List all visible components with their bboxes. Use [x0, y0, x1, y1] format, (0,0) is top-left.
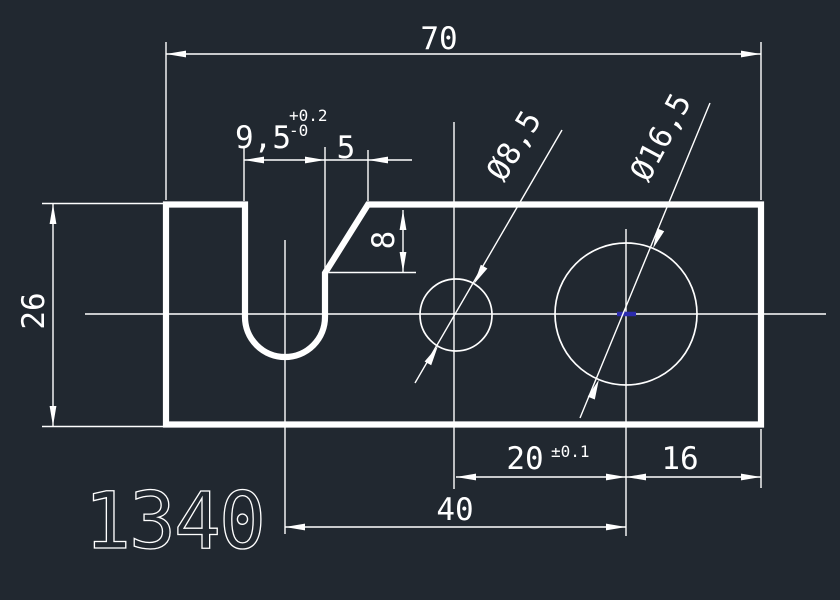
dim-text-overall-height[interactable]: 26 [16, 292, 52, 329]
dim-hole-spacing[interactable]: 20 ±0.1 [456, 441, 626, 480]
dim-slot-width[interactable]: 9,5 +0.2 -0 [235, 106, 328, 271]
dim-arrowhead [400, 252, 407, 272]
dim-text-overall-width[interactable]: 70 [420, 21, 457, 57]
dim-arrowhead [368, 157, 388, 164]
dim-arrowhead [166, 51, 186, 58]
dim-arrowhead [50, 406, 57, 426]
dim-arrowhead [741, 51, 761, 58]
dim-overall-height[interactable]: 26 [16, 204, 163, 427]
leader-arrowhead [588, 380, 599, 400]
dim-arrowhead [285, 524, 305, 531]
leader-arrowhead [425, 346, 438, 365]
dim-arrowhead [400, 210, 407, 230]
dim-small-hole-diameter[interactable]: Ø8,5 [415, 105, 562, 383]
dim-text-right-offset[interactable]: 16 [661, 441, 698, 477]
part-number-text[interactable]: 1340 [84, 477, 264, 567]
dim-text-large-hole-dia[interactable]: Ø16,5 [623, 88, 699, 187]
dim-text-slot-to-large-hole[interactable]: 40 [436, 492, 473, 528]
dim-arrowhead [244, 157, 264, 164]
dim-arrowhead [626, 474, 646, 481]
dim-arrowhead [741, 474, 761, 481]
dim-arrowhead [456, 474, 476, 481]
dim-large-hole-diameter[interactable]: Ø16,5 [580, 88, 710, 418]
dim-arrowhead [305, 157, 325, 164]
dim-arrowhead [606, 524, 626, 531]
dim-arrowhead [606, 474, 626, 481]
dim-text-chamfer-depth[interactable]: 8 [366, 231, 402, 250]
centerlines[interactable] [85, 122, 826, 536]
small-hole-circle[interactable] [420, 279, 492, 351]
dim-text-chamfer-width[interactable]: 5 [337, 130, 356, 166]
dim-chamfer-width[interactable]: 5 [325, 130, 412, 201]
cad-drawing-canvas[interactable]: 70 26 9,5 +0.2 -0 5 8 [0, 0, 840, 600]
dim-text-slot-width[interactable]: 9,5 [235, 120, 291, 156]
dim-tol-hole-spacing[interactable]: ±0.1 [551, 442, 590, 461]
dim-tol-lower[interactable]: -0 [289, 121, 308, 140]
dim-slot-to-large-hole[interactable]: 40 [285, 492, 626, 530]
dim-text-small-hole-dia[interactable]: Ø8,5 [480, 105, 549, 188]
dim-arrowhead [50, 204, 57, 224]
cad-viewport: 70 26 9,5 +0.2 -0 5 8 [0, 0, 840, 600]
leader-arrowhead [474, 265, 487, 284]
dim-text-hole-spacing[interactable]: 20 [506, 441, 543, 477]
dim-right-offset[interactable]: 16 [626, 429, 761, 488]
